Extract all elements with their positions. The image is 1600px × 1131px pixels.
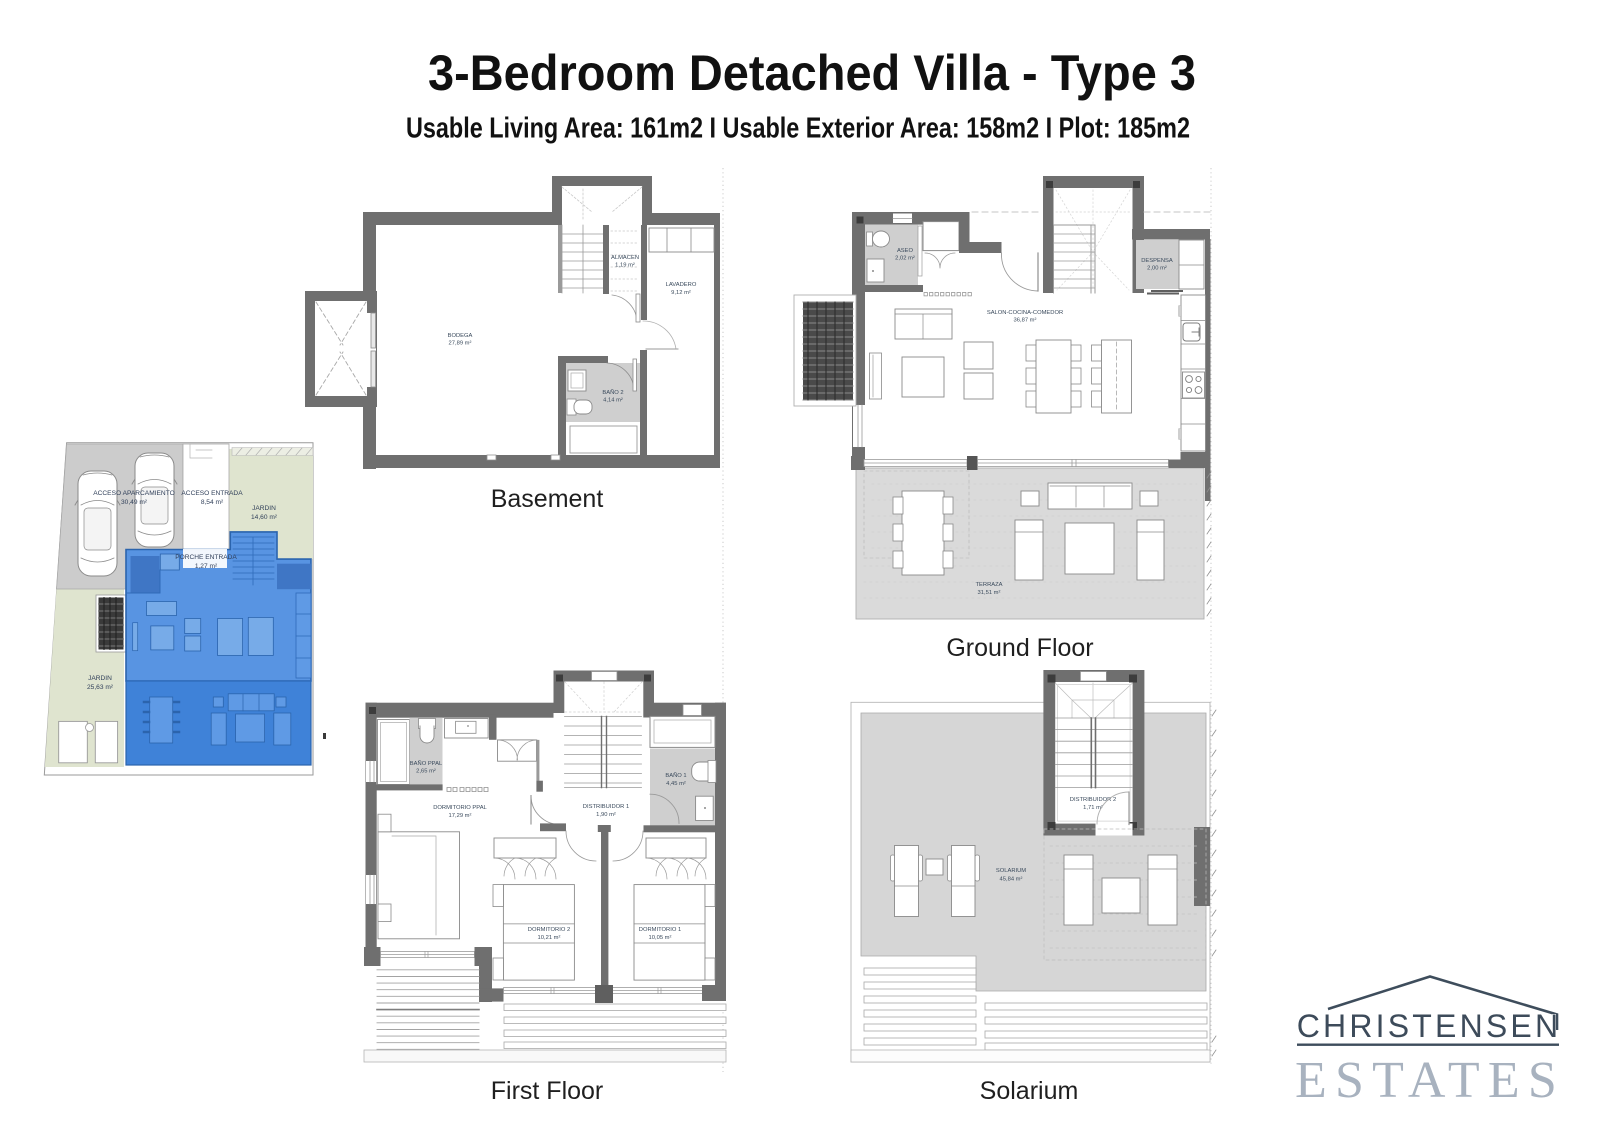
svg-text:SOLARIUM: SOLARIUM xyxy=(996,868,1026,874)
svg-text:ACCESO ENTRADA: ACCESO ENTRADA xyxy=(181,490,243,497)
svg-text:BAÑO 2: BAÑO 2 xyxy=(602,389,623,396)
svg-text:DISTRIBUIDOR 2: DISTRIBUIDOR 2 xyxy=(1070,797,1116,803)
svg-text:Solarium: Solarium xyxy=(980,1077,1079,1105)
svg-text:SALON-COCINA-COMEDOR: SALON-COCINA-COMEDOR xyxy=(987,310,1063,316)
svg-text:27,89 m²: 27,89 m² xyxy=(449,341,472,347)
svg-text:10,21 m²: 10,21 m² xyxy=(538,935,561,941)
svg-text:10,05 m²: 10,05 m² xyxy=(649,935,672,941)
svg-text:1,27 m²: 1,27 m² xyxy=(195,563,218,570)
svg-text:DORMITORIO 2: DORMITORIO 2 xyxy=(528,927,570,933)
svg-text:17,29 m²: 17,29 m² xyxy=(449,813,472,819)
svg-text:9,12 m²: 9,12 m² xyxy=(671,290,691,296)
svg-text:BAÑO PPAL: BAÑO PPAL xyxy=(410,760,443,767)
svg-text:4,14 m²: 4,14 m² xyxy=(603,398,623,404)
svg-text:4,45 m²: 4,45 m² xyxy=(666,781,686,787)
svg-text:1,90 m²: 1,90 m² xyxy=(596,812,616,818)
svg-text:JARDIN: JARDIN xyxy=(88,675,112,682)
svg-text:DISTRIBUIDOR 1: DISTRIBUIDOR 1 xyxy=(583,804,629,810)
svg-text:Ground Floor: Ground Floor xyxy=(946,634,1093,662)
svg-text:1,19 m²: 1,19 m² xyxy=(615,263,635,269)
svg-text:TERRAZA: TERRAZA xyxy=(975,582,1002,588)
svg-text:2,02 m²: 2,02 m² xyxy=(895,256,915,262)
svg-text:25,63 m²: 25,63 m² xyxy=(87,684,114,691)
svg-text:PORCHE ENTRADA: PORCHE ENTRADA xyxy=(175,554,237,561)
svg-text:Basement: Basement xyxy=(491,485,604,513)
svg-text:JARDIN: JARDIN xyxy=(252,505,276,512)
svg-text:ALMACEN: ALMACEN xyxy=(611,255,639,261)
svg-text:31,51 m²: 31,51 m² xyxy=(978,590,1001,596)
svg-text:2,65 m²: 2,65 m² xyxy=(416,769,436,775)
svg-text:BODEGA: BODEGA xyxy=(448,333,473,339)
svg-text:LAVADERO: LAVADERO xyxy=(666,282,697,288)
svg-text:30,49 m²: 30,49 m² xyxy=(121,499,148,506)
svg-text:36,87 m²: 36,87 m² xyxy=(1014,318,1037,324)
svg-text:ACCESO APARCAMIENTO: ACCESO APARCAMIENTO xyxy=(93,490,174,497)
svg-text:DORMITORIO PPAL: DORMITORIO PPAL xyxy=(433,805,487,811)
svg-text:Usable Living Area: 161m2 I Us: Usable Living Area: 161m2 I Usable Exter… xyxy=(406,113,1190,145)
svg-text:8,54 m²: 8,54 m² xyxy=(201,499,224,506)
svg-text:3-Bedroom Detached Villa - Typ: 3-Bedroom Detached Villa - Type 3 xyxy=(428,45,1196,101)
svg-text:DESPENSA: DESPENSA xyxy=(1141,258,1173,264)
svg-text:BAÑO 1: BAÑO 1 xyxy=(665,772,686,779)
svg-text:2,00 m²: 2,00 m² xyxy=(1147,266,1167,272)
svg-text:45,84 m²: 45,84 m² xyxy=(1000,877,1023,883)
svg-text:DORMITORIO 1: DORMITORIO 1 xyxy=(639,927,681,933)
svg-text:ASEO: ASEO xyxy=(897,248,914,254)
svg-text:CHRISTENSEN: CHRISTENSEN xyxy=(1297,1008,1562,1044)
svg-text:First Floor: First Floor xyxy=(491,1077,604,1105)
svg-text:14,60 m²: 14,60 m² xyxy=(251,514,278,521)
svg-text:ESTATES: ESTATES xyxy=(1295,1052,1565,1109)
